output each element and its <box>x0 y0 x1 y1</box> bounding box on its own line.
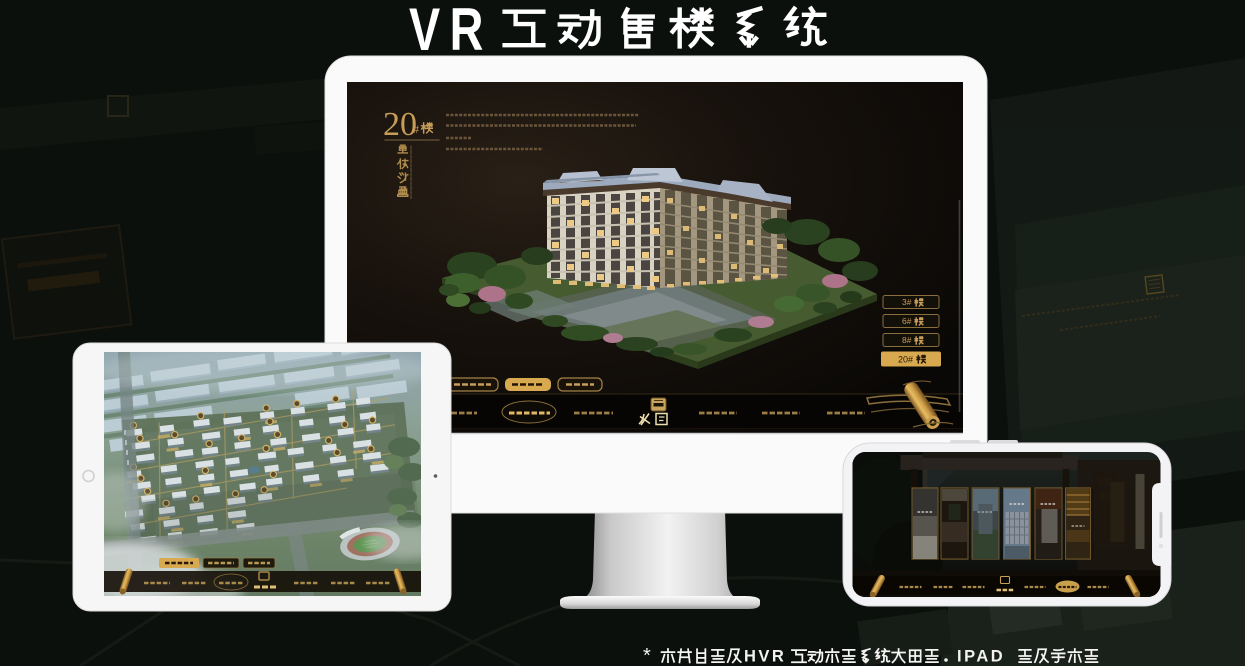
svg-text:20: 20 <box>383 106 417 143</box>
svg-text:IPAD: IPAD <box>957 648 1005 666</box>
svg-text:6#: 6# <box>902 316 912 326</box>
svg-text:VR: VR <box>409 0 493 63</box>
svg-text:HVR: HVR <box>744 648 786 666</box>
svg-text:#: # <box>413 122 419 136</box>
svg-text:8#: 8# <box>902 335 912 345</box>
svg-text:3#: 3# <box>902 297 912 307</box>
svg-text:*: * <box>643 645 654 666</box>
svg-text:20#: 20# <box>898 355 913 365</box>
